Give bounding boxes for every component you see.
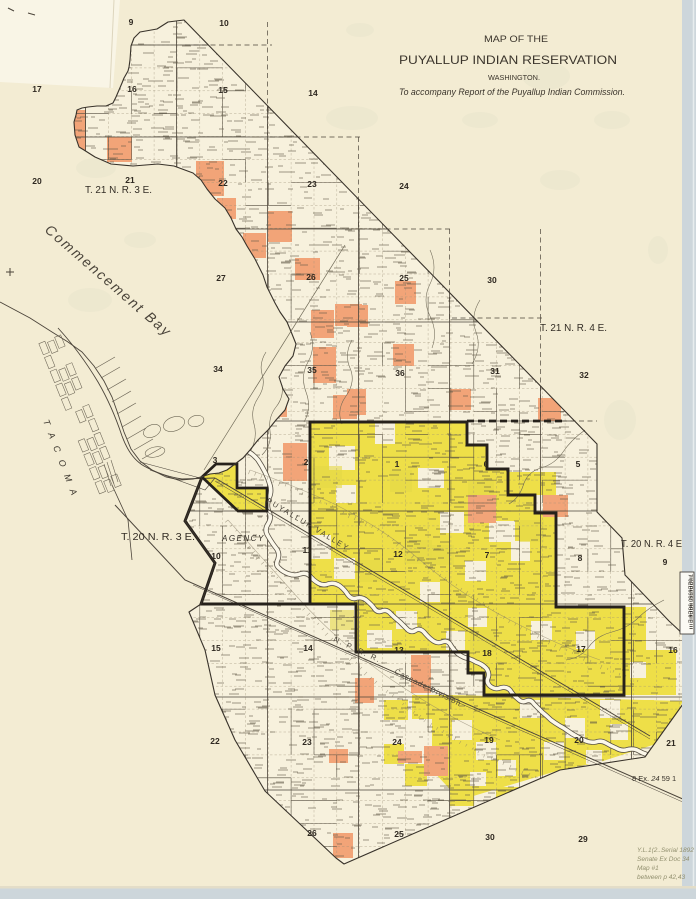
svg-text:20: 20 (574, 735, 584, 745)
svg-text:2: 2 (304, 457, 309, 467)
svg-text:7: 7 (485, 550, 490, 560)
svg-text:17: 17 (32, 84, 42, 94)
svg-text:13: 13 (394, 645, 404, 655)
svg-text:27: 27 (216, 273, 226, 283)
svg-text:32: 32 (579, 370, 589, 380)
svg-text:3: 3 (213, 455, 218, 465)
svg-text:22: 22 (218, 178, 228, 188)
svg-text:T. 21 N. R. 4 E.: T. 21 N. R. 4 E. (540, 323, 607, 334)
svg-text:18: 18 (482, 648, 492, 658)
svg-text:31: 31 (490, 366, 500, 376)
svg-text:To accompany Report of the Puy: To accompany Report of the Puyallup Indi… (399, 87, 625, 98)
svg-text:36: 36 (395, 368, 405, 378)
svg-text:29: 29 (578, 834, 588, 844)
svg-text:Senate Ex Doc 34: Senate Ex Doc 34 (637, 856, 690, 863)
svg-text:30: 30 (487, 275, 497, 285)
svg-text:24: 24 (399, 181, 409, 191)
svg-text:30: 30 (485, 832, 495, 842)
svg-text:MAP OF THE: MAP OF THE (484, 34, 548, 44)
svg-text:22: 22 (210, 736, 220, 746)
svg-text:9: 9 (663, 557, 668, 567)
svg-text:16: 16 (127, 84, 137, 94)
svg-text:10: 10 (219, 18, 229, 28)
svg-text:12: 12 (393, 549, 403, 559)
svg-text:1: 1 (395, 459, 400, 469)
svg-text:16: 16 (668, 645, 678, 655)
svg-text:15: 15 (211, 643, 221, 653)
svg-text:25: 25 (399, 273, 409, 283)
svg-text:WASHINGTON.: WASHINGTON. (488, 73, 540, 82)
svg-text:23: 23 (307, 179, 317, 189)
svg-text:35: 35 (307, 365, 317, 375)
svg-text:26: 26 (307, 828, 317, 838)
svg-text:8 Ex. 24 59 1: 8 Ex. 24 59 1 (632, 774, 676, 783)
svg-text:21: 21 (125, 175, 135, 185)
svg-text:20: 20 (32, 176, 42, 186)
svg-text:T. 21 N. R. 3 E.: T. 21 N. R. 3 E. (85, 185, 152, 196)
svg-text:10: 10 (211, 551, 221, 561)
svg-text:14: 14 (303, 643, 313, 653)
svg-text:14: 14 (308, 88, 318, 98)
svg-text:6: 6 (484, 459, 489, 469)
svg-text:21: 21 (666, 738, 676, 748)
svg-text:between p 42,43: between p 42,43 (637, 874, 685, 881)
svg-text:19: 19 (484, 735, 494, 745)
svg-text:9: 9 (129, 17, 134, 27)
svg-text:23: 23 (302, 737, 312, 747)
svg-text:15: 15 (218, 85, 228, 95)
svg-text:T. 20 N. R. 4 E: T. 20 N. R. 4 E (621, 538, 682, 550)
svg-text:34: 34 (213, 364, 223, 374)
svg-text:24: 24 (392, 737, 402, 747)
svg-text:5: 5 (576, 459, 581, 469)
svg-text:Map #1: Map #1 (637, 865, 659, 872)
svg-text:17: 17 (576, 644, 586, 654)
svg-text:8: 8 (578, 553, 583, 563)
svg-text:Y.L.1(2..Serial 1892: Y.L.1(2..Serial 1892 (637, 847, 694, 854)
svg-text:AGENCY: AGENCY (221, 534, 265, 543)
svg-text:T. 20 N. R. 3 E.: T. 20 N. R. 3 E. (121, 531, 195, 543)
svg-text:26: 26 (306, 272, 316, 282)
svg-text:25: 25 (394, 829, 404, 839)
svg-text:11: 11 (303, 545, 312, 555)
svg-text:PUYALLUP INDIAN RESERVATION: PUYALLUP INDIAN RESERVATION (399, 55, 617, 67)
